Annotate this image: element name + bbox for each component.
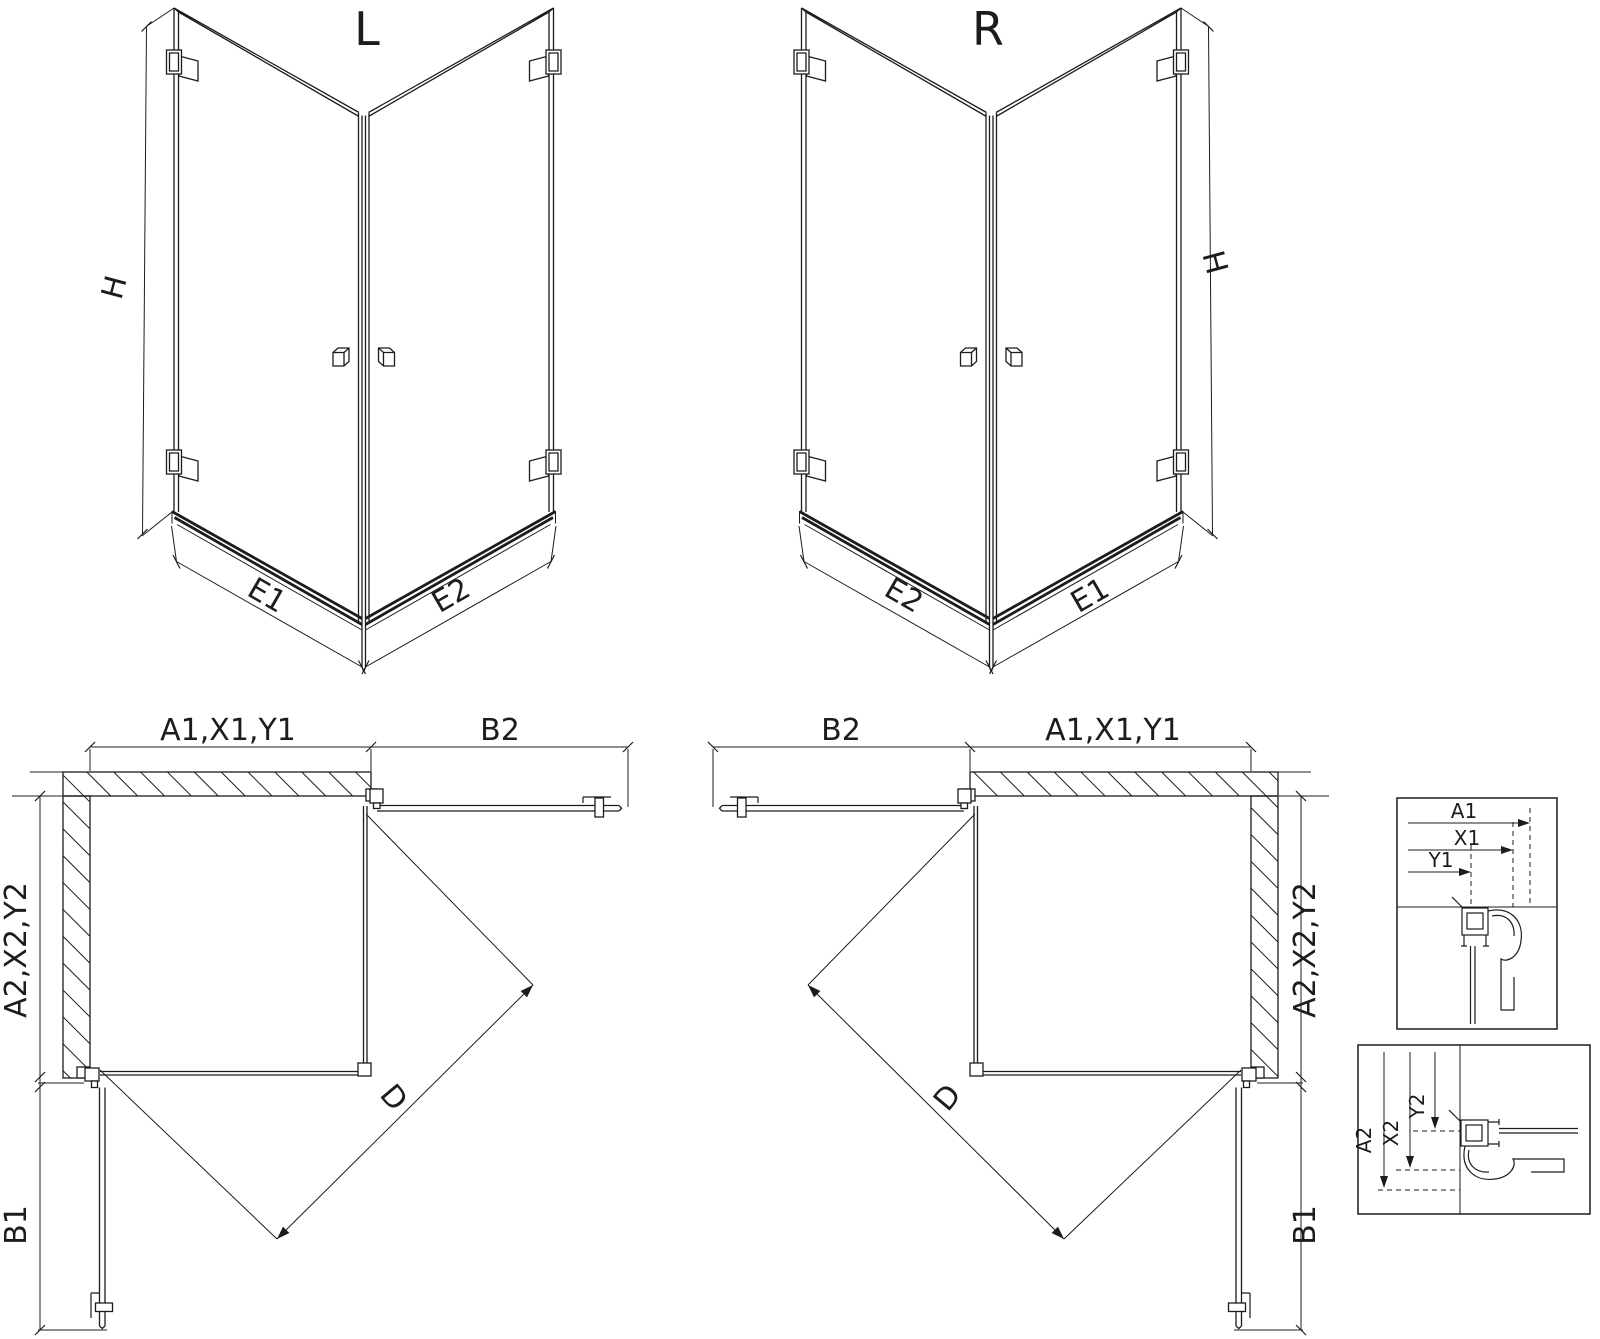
plan-right-side-dim-lower: B1 bbox=[1288, 1205, 1323, 1245]
iso-left-base-dim-left: E1 bbox=[242, 571, 292, 620]
shower-enclosure-diagram: L H E1 E2 R H E2 E1 A1,X1,Y1 B2 A2,X2,Y2… bbox=[0, 0, 1600, 1339]
detail-top-dim-a1: A1 bbox=[1451, 799, 1477, 823]
iso-left-variant-label: L bbox=[354, 2, 380, 56]
plan-right-walls bbox=[964, 772, 1278, 1078]
iso-left-height-dim-label: H bbox=[95, 272, 135, 303]
detail-bottom-dim-y2: Y2 bbox=[1405, 1094, 1429, 1120]
iso-right-base-dim-left: E2 bbox=[879, 571, 929, 620]
plan-left-top-dim-right: B2 bbox=[480, 713, 520, 748]
plan-view-left: A1,X1,Y1 B2 A2,X2,Y2 B1 D bbox=[0, 713, 633, 1335]
plan-right-diagonal-dim: D bbox=[927, 1078, 969, 1118]
plan-right-side-dim-upper: A2,X2,Y2 bbox=[1288, 882, 1323, 1018]
plan-left-top-dim-left: A1,X1,Y1 bbox=[160, 713, 296, 748]
detail-top-dim-x1: X1 bbox=[1454, 826, 1480, 850]
technical-drawing-page: L H E1 E2 R H E2 E1 A1,X1,Y1 B2 A2,X2,Y2… bbox=[0, 0, 1600, 1339]
iso-right-height-dim-label: H bbox=[1194, 247, 1234, 278]
detail-bottom-dim-x2: X2 bbox=[1379, 1120, 1403, 1146]
detail-top-dim-y1: Y1 bbox=[1428, 848, 1454, 872]
iso-right-variant-label: R bbox=[972, 2, 1004, 56]
plan-left-diagonal-dim: D bbox=[372, 1078, 414, 1118]
plan-left-side-dim-lower: B1 bbox=[0, 1205, 34, 1245]
iso-left-base-dim-right: E2 bbox=[426, 571, 476, 620]
plan-right-top-dim-left: B2 bbox=[821, 713, 861, 748]
detail-bottom-dim-a2: A2 bbox=[1352, 1127, 1376, 1153]
plan-view-right: B2 A1,X1,Y1 A2,X2,Y2 B1 D bbox=[708, 713, 1329, 1335]
detail-box-top: A1 X1 Y1 bbox=[1397, 798, 1557, 1029]
plan-left-side-dim-upper: A2,X2,Y2 bbox=[0, 882, 34, 1018]
iso-view-left: L H E1 E2 bbox=[95, 2, 561, 674]
detail-box-bottom: A2 X2 Y2 bbox=[1352, 1045, 1590, 1214]
iso-view-right: R H E2 E1 bbox=[794, 2, 1234, 674]
plan-left-walls bbox=[63, 772, 377, 1078]
plan-right-top-dim-right: A1,X1,Y1 bbox=[1045, 713, 1181, 748]
